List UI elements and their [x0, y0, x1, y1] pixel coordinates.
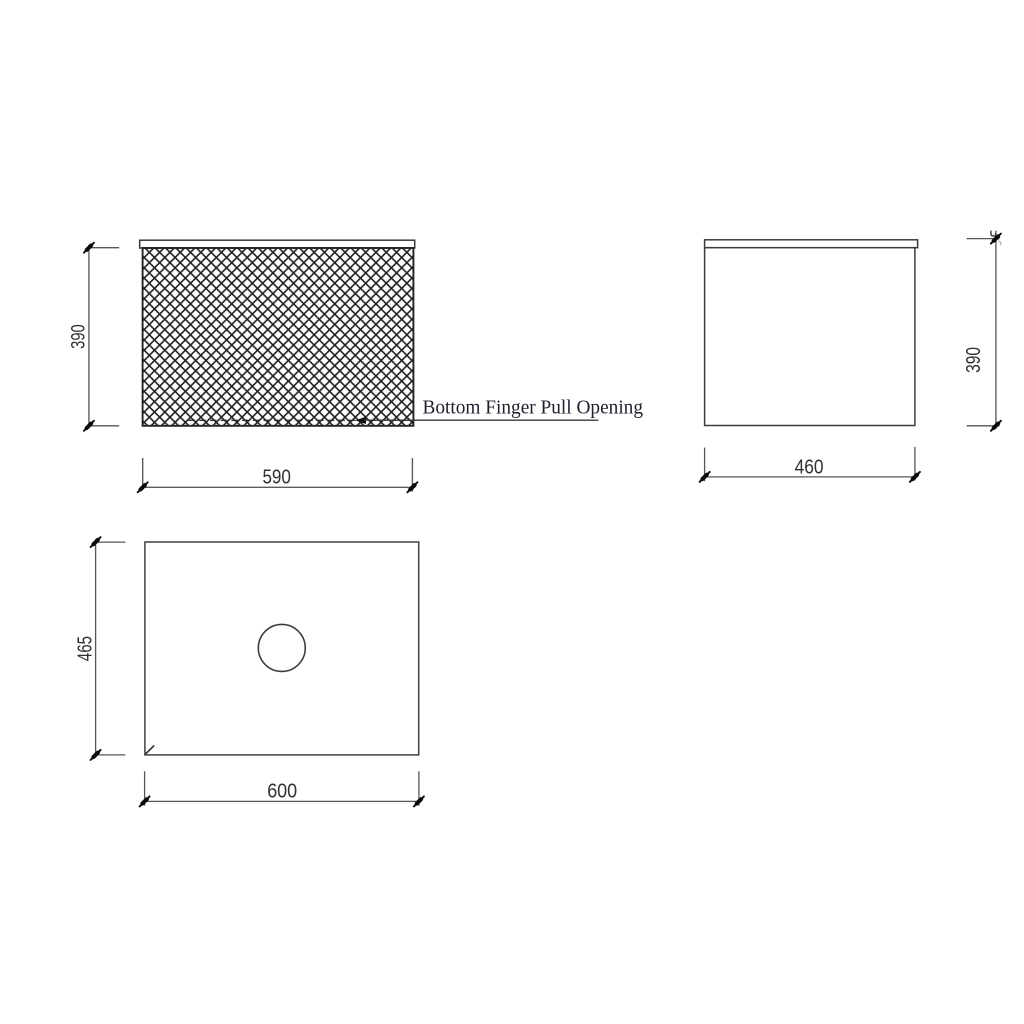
svg-text:460: 460	[795, 455, 824, 478]
svg-text:465: 465	[75, 636, 97, 661]
svg-text:390: 390	[67, 324, 89, 349]
svg-text:590: 590	[262, 465, 291, 488]
svg-text:390: 390	[962, 347, 985, 373]
svg-text:Bottom Finger Pull Opening: Bottom Finger Pull Opening	[423, 396, 644, 418]
svg-text:600: 600	[267, 779, 297, 802]
